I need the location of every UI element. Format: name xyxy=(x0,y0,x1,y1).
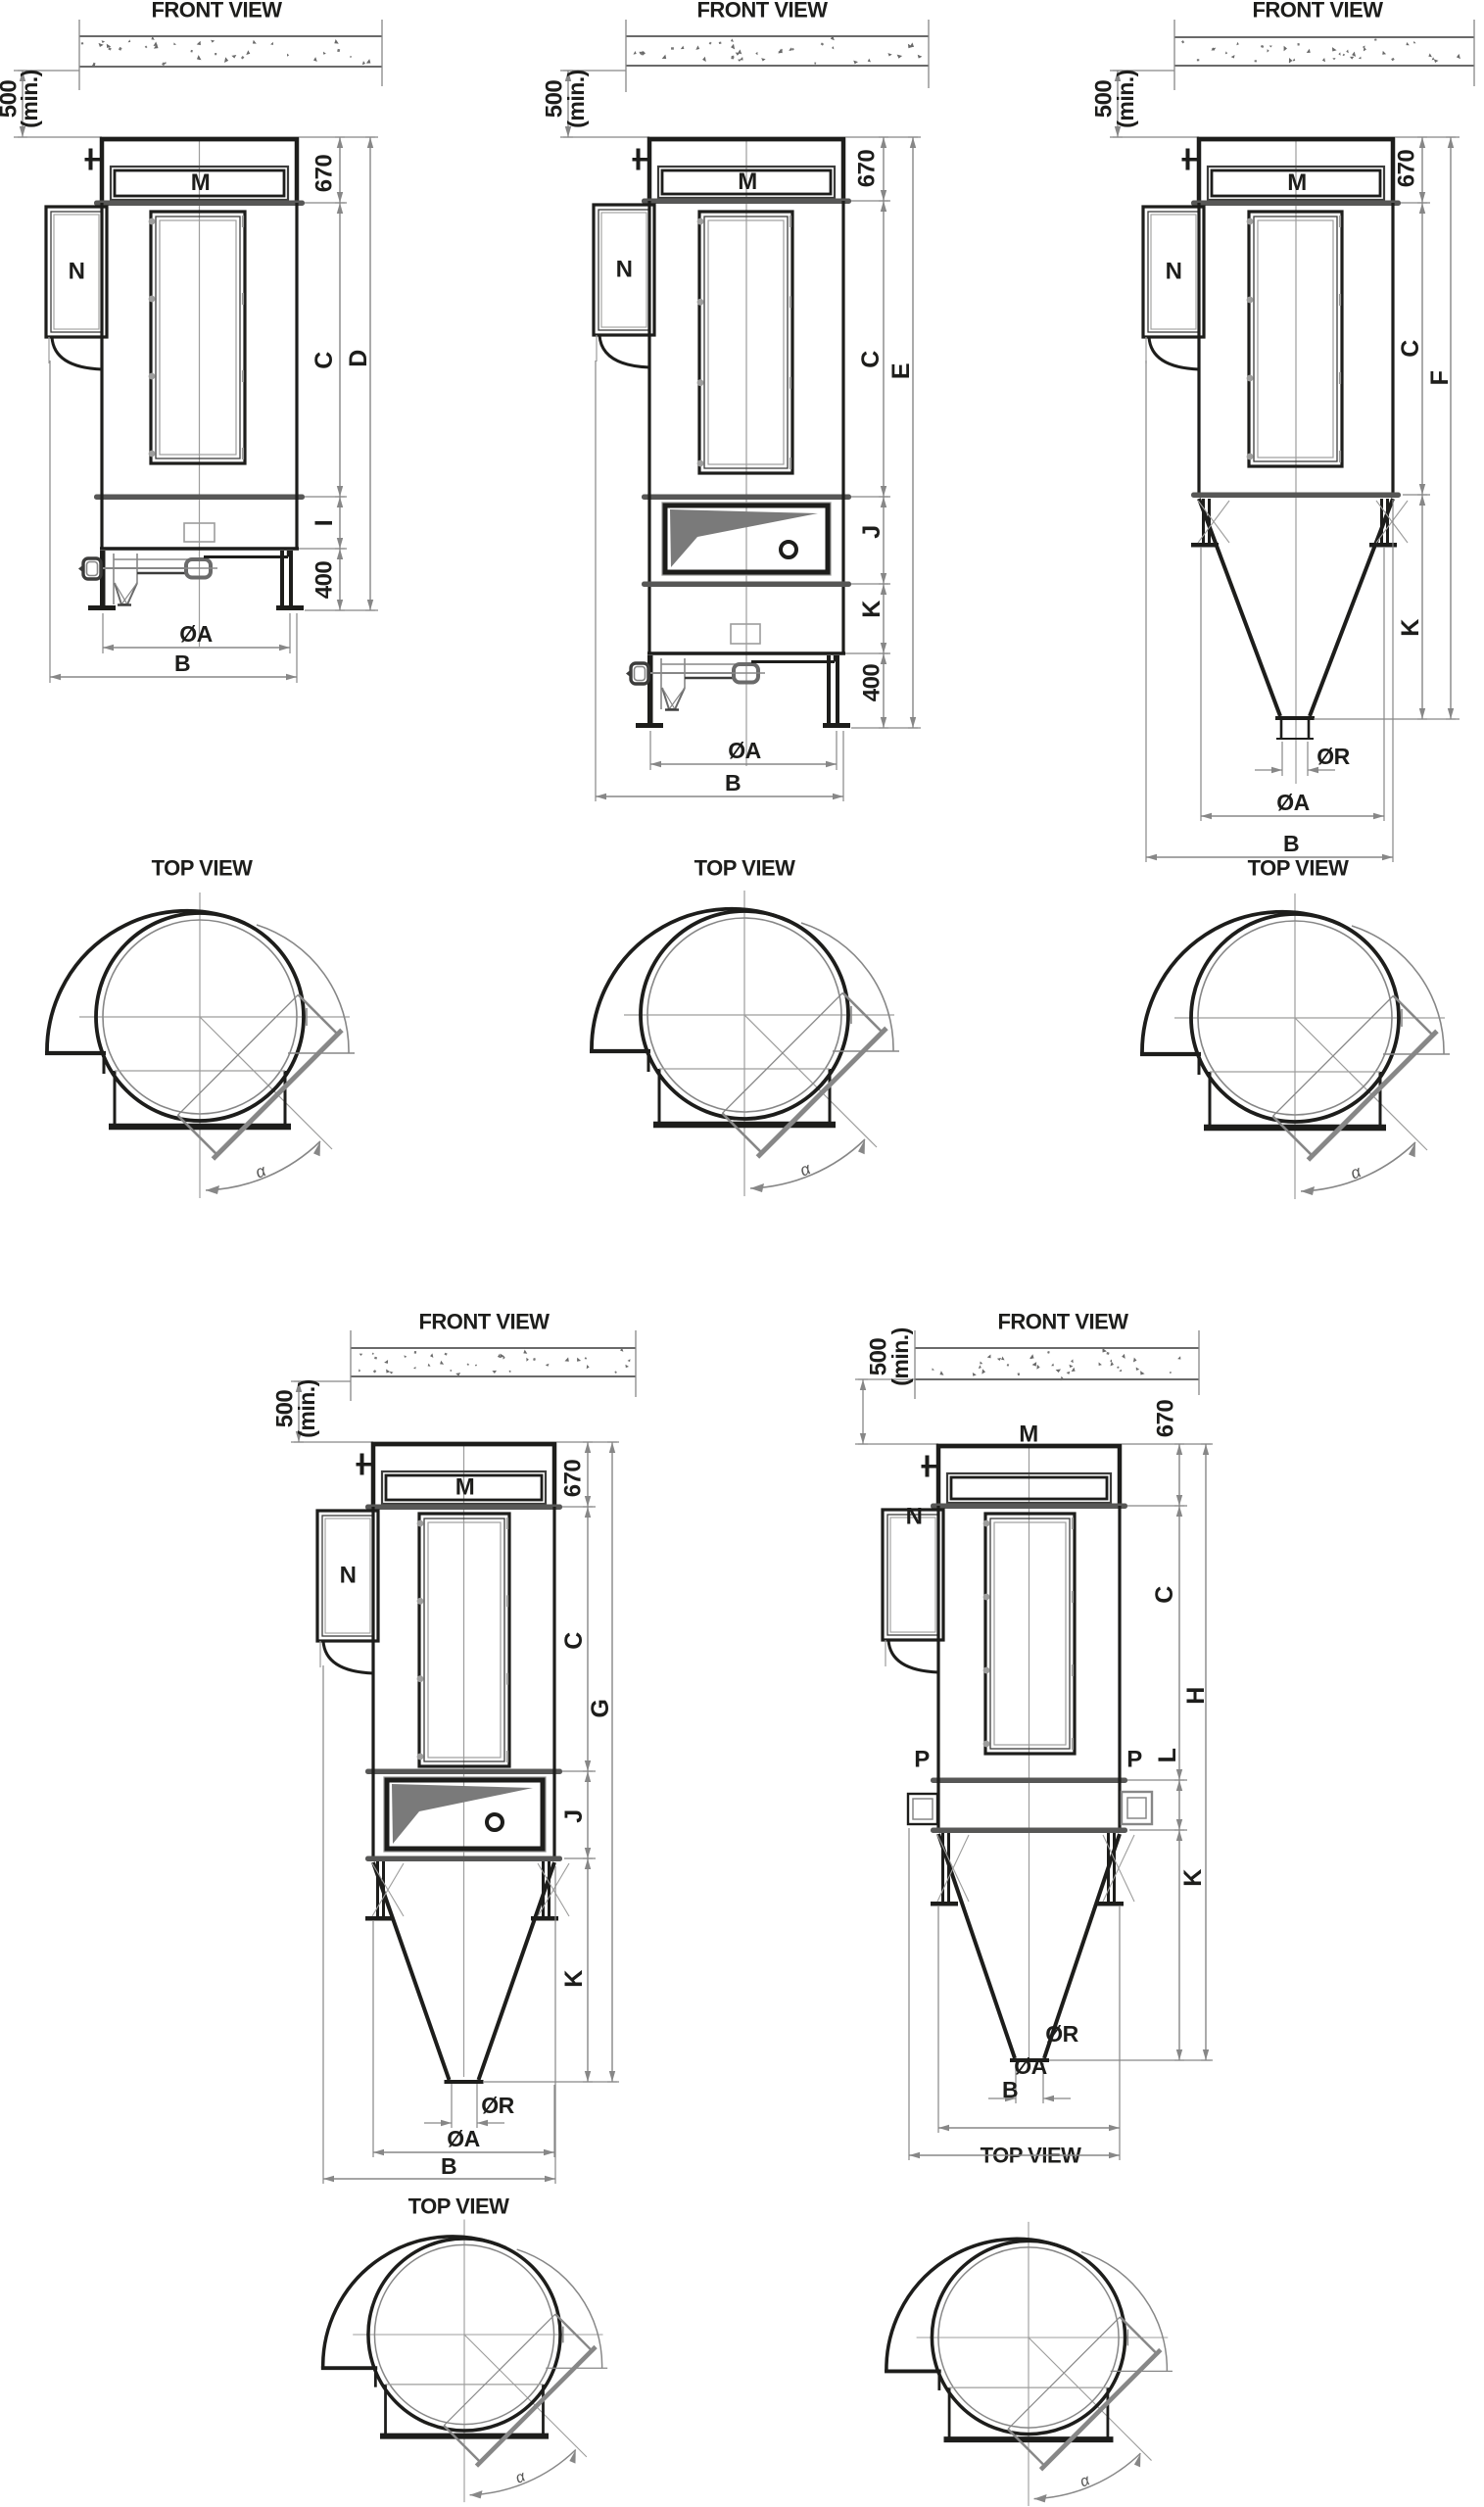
svg-text:FRONT VIEW: FRONT VIEW xyxy=(418,1310,550,1334)
svg-text:400: 400 xyxy=(311,561,338,600)
svg-text:D: D xyxy=(345,350,372,367)
svg-text:670: 670 xyxy=(311,155,338,193)
svg-text:TOP VIEW: TOP VIEW xyxy=(152,856,254,881)
svg-text:E: E xyxy=(887,363,915,379)
svg-text:670: 670 xyxy=(854,150,881,188)
svg-text:C: C xyxy=(1397,340,1424,358)
svg-text:K: K xyxy=(560,1970,588,1988)
svg-text:F: F xyxy=(1426,370,1454,385)
svg-text:TOP VIEW: TOP VIEW xyxy=(408,2194,510,2219)
svg-text:670: 670 xyxy=(560,1460,587,1498)
svg-text:M: M xyxy=(191,169,211,196)
svg-text:H: H xyxy=(1182,1687,1210,1705)
svg-text:ØA: ØA xyxy=(1276,790,1310,815)
svg-text:ØA: ØA xyxy=(179,621,213,647)
svg-text:TOP VIEW: TOP VIEW xyxy=(694,856,796,881)
svg-text:C: C xyxy=(1151,1586,1178,1604)
svg-text:J: J xyxy=(560,1809,588,1822)
svg-text:P: P xyxy=(1126,1747,1142,1773)
svg-text:B: B xyxy=(1283,831,1299,856)
svg-text:FRONT VIEW: FRONT VIEW xyxy=(696,0,828,23)
svg-text:(min.): (min.) xyxy=(563,70,589,128)
svg-text:ØA: ØA xyxy=(1014,2053,1047,2079)
svg-text:ØR: ØR xyxy=(1045,2021,1078,2047)
svg-text:N: N xyxy=(906,1504,923,1530)
svg-text:I: I xyxy=(311,520,338,526)
svg-text:TOP VIEW: TOP VIEW xyxy=(1248,856,1350,881)
svg-text:N: N xyxy=(1166,259,1182,285)
svg-text:K: K xyxy=(1179,1869,1207,1887)
svg-text:G: G xyxy=(587,1700,614,1718)
svg-text:(min.): (min.) xyxy=(17,70,42,128)
svg-text:(min.): (min.) xyxy=(887,1327,913,1386)
svg-text:J: J xyxy=(858,525,886,538)
svg-text:B: B xyxy=(725,770,741,795)
svg-text:670: 670 xyxy=(1394,150,1420,188)
svg-text:ØA: ØA xyxy=(728,738,761,763)
svg-text:M: M xyxy=(738,169,757,195)
svg-text:(min.): (min.) xyxy=(1113,70,1138,128)
svg-text:400: 400 xyxy=(859,664,886,702)
svg-text:ØR: ØR xyxy=(1316,744,1350,769)
svg-text:ØA: ØA xyxy=(447,2126,480,2151)
svg-text:B: B xyxy=(441,2153,456,2179)
svg-text:C: C xyxy=(560,1632,588,1650)
svg-text:FRONT VIEW: FRONT VIEW xyxy=(1252,0,1383,23)
svg-text:K: K xyxy=(1397,619,1424,637)
svg-text:ØR: ØR xyxy=(481,2093,514,2118)
svg-text:P: P xyxy=(914,1747,930,1773)
svg-text:N: N xyxy=(340,1563,357,1589)
svg-text:K: K xyxy=(858,601,886,618)
svg-text:B: B xyxy=(1002,2077,1018,2102)
svg-text:B: B xyxy=(174,651,190,676)
svg-text:FRONT VIEW: FRONT VIEW xyxy=(997,1310,1128,1334)
svg-text:670: 670 xyxy=(1153,1400,1179,1438)
svg-text:M: M xyxy=(1019,1422,1038,1448)
svg-text:M: M xyxy=(1287,169,1307,196)
svg-text:M: M xyxy=(455,1474,475,1501)
svg-text:FRONT VIEW: FRONT VIEW xyxy=(151,0,282,23)
svg-text:(min.): (min.) xyxy=(294,1379,319,1438)
svg-text:N: N xyxy=(616,257,633,283)
svg-text:C: C xyxy=(311,352,338,369)
svg-text:C: C xyxy=(857,351,885,368)
svg-text:N: N xyxy=(69,259,85,285)
svg-text:L: L xyxy=(1154,1748,1181,1762)
